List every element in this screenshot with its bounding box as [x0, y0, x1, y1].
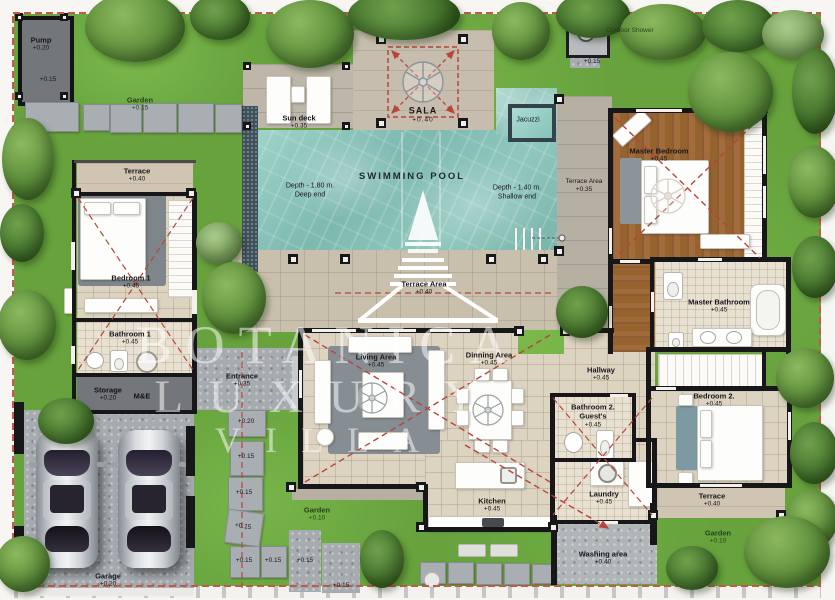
bush — [202, 262, 266, 334]
tree — [492, 2, 550, 60]
column-post — [554, 94, 564, 104]
sliding-door — [368, 329, 416, 332]
bush — [788, 146, 835, 218]
label-stone-5: +0.15 — [236, 557, 252, 565]
bush — [0, 204, 44, 262]
stepping-stone — [83, 104, 110, 131]
door-opening — [698, 258, 722, 261]
wall — [298, 328, 303, 489]
tree — [744, 516, 830, 588]
sink-icon — [500, 467, 517, 484]
window — [763, 186, 766, 218]
wall — [298, 484, 428, 489]
door-opening — [651, 292, 654, 312]
car-sunroof — [132, 485, 166, 513]
wall — [423, 527, 557, 532]
wall — [550, 393, 555, 532]
nightstand — [678, 394, 693, 406]
label-living-area: Living Area+0.45 — [356, 352, 397, 370]
door-opening — [610, 394, 628, 397]
label-stone-8: +0.15 — [333, 582, 349, 590]
sliding-door — [700, 484, 742, 487]
column-post — [548, 522, 558, 532]
column-post — [416, 522, 426, 532]
column-post — [342, 62, 350, 70]
label-stone-7: +0.15 — [297, 557, 313, 565]
label-sun-deck: Sun deck+0.35 — [282, 113, 315, 131]
sliding-door — [312, 329, 356, 332]
car — [118, 430, 180, 568]
door-opening — [609, 306, 612, 328]
column-post — [243, 62, 251, 70]
south-terrace-strip — [292, 488, 424, 500]
sliding-door — [430, 329, 470, 332]
label-pool-shallow: Depth - 1.40 m.Shallow end — [493, 184, 541, 202]
pillow — [700, 410, 712, 438]
column-post — [243, 122, 251, 130]
pool-terrace-deck — [232, 248, 560, 332]
column-post — [514, 326, 524, 336]
label-jacuzzi: Jacuzzi — [516, 117, 539, 126]
garage-door-line — [24, 588, 194, 596]
stepping-stone — [504, 563, 530, 585]
label-terrace-area-pool: Terrace Area+0.40 — [401, 279, 446, 297]
wall — [646, 350, 651, 390]
column-post — [340, 254, 350, 264]
pillow — [644, 196, 657, 224]
label-terrace-area-master: Terrace Area+0.35 — [566, 178, 603, 194]
wall — [74, 318, 197, 322]
courtyard-planter — [518, 330, 564, 354]
label-hallway: Hallway+0.45 — [587, 365, 615, 383]
bed-platform — [676, 406, 698, 470]
label-stone-6: +0.15 — [265, 557, 281, 565]
shower-tray-icon — [136, 351, 158, 373]
wall — [632, 438, 657, 442]
basin — [700, 331, 716, 344]
floor-plan: BOTANICA LUXURY VILLA Pump+0.20 +0.15 Ga… — [0, 0, 835, 600]
dining-chair — [492, 440, 508, 453]
tv-console — [358, 432, 408, 450]
car-mirror — [111, 462, 119, 467]
washer-door-icon — [598, 464, 617, 483]
column-post — [15, 13, 23, 21]
stepping-stone — [476, 563, 502, 585]
dining-chair — [456, 388, 469, 404]
pillow — [113, 202, 140, 215]
sala-post — [376, 118, 386, 128]
tree — [38, 398, 94, 444]
label-sala: SALA+0.40 — [409, 105, 438, 124]
pillow — [700, 440, 712, 468]
wall — [186, 496, 195, 548]
column-post — [71, 188, 81, 198]
column-post — [554, 246, 564, 256]
label-outdoor-shower: Outdoor Shower — [606, 27, 653, 35]
label-garden-bottom: Garden+0.10 — [304, 505, 330, 523]
door-opening — [598, 521, 618, 524]
round-stone — [424, 572, 440, 588]
bush — [792, 236, 835, 298]
label-pool-deep: Depth - 1.80 m.Deep end — [286, 182, 334, 200]
car-rear-window — [45, 526, 89, 552]
wall — [74, 373, 197, 377]
wall — [74, 192, 197, 196]
pillow — [644, 166, 657, 194]
tree — [776, 348, 834, 408]
tree — [688, 52, 773, 132]
dining-chair — [474, 368, 490, 381]
sofa — [314, 360, 331, 424]
label-terrace-bedroom2: Terrace+0.40 — [699, 491, 726, 509]
window — [763, 136, 766, 174]
wall — [550, 458, 636, 462]
car-windshield — [44, 450, 90, 476]
bush — [790, 422, 835, 484]
pool-mosaic-edge — [242, 106, 258, 272]
label-master-bathroom: Master Bathroom+0.45 — [688, 297, 750, 315]
basin — [726, 331, 742, 344]
sala-post — [458, 118, 468, 128]
basin — [564, 432, 583, 453]
bench — [490, 544, 518, 557]
door-opening — [192, 290, 197, 314]
label-bedroom2: Bedroom 2.+0.45 — [693, 391, 734, 409]
column-post — [288, 254, 298, 264]
tree — [196, 222, 242, 264]
label-stone-3: +0.15 — [236, 489, 252, 497]
sofa — [428, 350, 445, 430]
label-bedroom1: Bedroom 1+0.45 — [111, 273, 150, 291]
car-mirror — [97, 462, 105, 467]
label-stone-2: +0.15 — [238, 453, 254, 461]
dining-chair — [492, 368, 508, 381]
column-post — [15, 92, 23, 100]
window — [788, 412, 791, 440]
label-bathroom1: Bathroom 1+0.45 — [109, 329, 151, 347]
column-post — [416, 482, 426, 492]
car-windshield — [126, 450, 172, 476]
label-dining-area: Dinning Area+0.45 — [466, 350, 512, 368]
bed-platform — [620, 158, 642, 224]
label-outdoor-shower-elev: +0.15 — [584, 58, 600, 66]
wall — [646, 347, 791, 352]
toilet — [110, 350, 128, 372]
tree — [556, 286, 608, 338]
label-kitchen: Kitchen+0.45 — [478, 496, 506, 514]
wall — [74, 160, 196, 163]
door-opening — [656, 387, 676, 390]
window — [636, 109, 682, 112]
wall — [632, 393, 636, 462]
column-post — [342, 122, 350, 130]
entrance-door — [299, 370, 302, 398]
label-garage: Garage+0.20 — [95, 571, 121, 589]
label-swimming-pool: SWIMMING POOL — [359, 171, 465, 183]
wall — [646, 386, 651, 488]
palm-tree — [666, 546, 718, 590]
label-garden-top: Garden+0.15 — [127, 95, 153, 113]
dining-chair — [456, 410, 469, 426]
label-bathroom2: Bathroom 2.Guest's+0.45 — [571, 403, 615, 430]
dining-chair — [511, 410, 524, 426]
column-post — [486, 254, 496, 264]
coffee-table — [362, 372, 404, 418]
bush — [0, 290, 56, 360]
label-pump: Pump+0.20 — [31, 35, 52, 53]
column-post — [60, 92, 68, 100]
car-mirror — [29, 462, 37, 467]
car-sunroof — [50, 485, 84, 513]
label-laundry: Laundry+0.45 — [589, 489, 619, 507]
stepping-stone — [448, 562, 474, 584]
label-pump-elev2: +0.15 — [40, 76, 56, 84]
label-storage: Storage+0.20 — [94, 385, 122, 403]
door-opening — [609, 228, 612, 254]
basin — [86, 352, 104, 369]
pillow — [84, 202, 111, 215]
dining-table — [468, 380, 512, 440]
wall — [186, 426, 195, 476]
wall — [762, 108, 767, 262]
bench — [84, 298, 158, 313]
deck-table — [291, 86, 305, 103]
palm-tree — [360, 530, 404, 588]
label-entrance: Entrance+0.35 — [226, 371, 258, 389]
toilet — [663, 272, 683, 300]
label-master-bedroom: Master Bedroom+0.45 — [629, 146, 688, 164]
stove-icon — [482, 518, 504, 527]
bush — [792, 48, 835, 134]
column-post — [286, 482, 296, 492]
label-me: M&E — [134, 391, 151, 400]
stepping-stone — [178, 103, 214, 133]
sofa — [348, 336, 412, 353]
wall — [786, 257, 791, 354]
door-opening — [620, 260, 640, 263]
label-washing-area: Washing area+0.40 — [579, 549, 628, 567]
label-stone-1: +0.20 — [238, 418, 254, 426]
sala-post — [458, 34, 468, 44]
column-post — [648, 510, 658, 520]
stepping-stone — [215, 104, 242, 133]
car-rear-window — [127, 526, 171, 552]
tv-console — [700, 234, 750, 249]
dining-chair — [511, 388, 524, 404]
column-post — [60, 13, 68, 21]
wall — [14, 402, 24, 454]
tree — [266, 0, 354, 68]
toilet — [596, 430, 614, 459]
armchair — [316, 428, 334, 446]
bathtub-basin — [756, 290, 780, 330]
tree — [2, 118, 54, 200]
window — [71, 242, 75, 270]
dining-chair — [474, 440, 490, 453]
column-post — [186, 188, 196, 198]
label-garden-right: Garden+0.10 — [705, 528, 731, 546]
window — [71, 346, 75, 364]
wall — [762, 350, 766, 390]
label-terrace-bedroom1: Terrace+0.40 — [124, 166, 151, 184]
bench — [458, 544, 486, 557]
column-post — [538, 254, 548, 264]
